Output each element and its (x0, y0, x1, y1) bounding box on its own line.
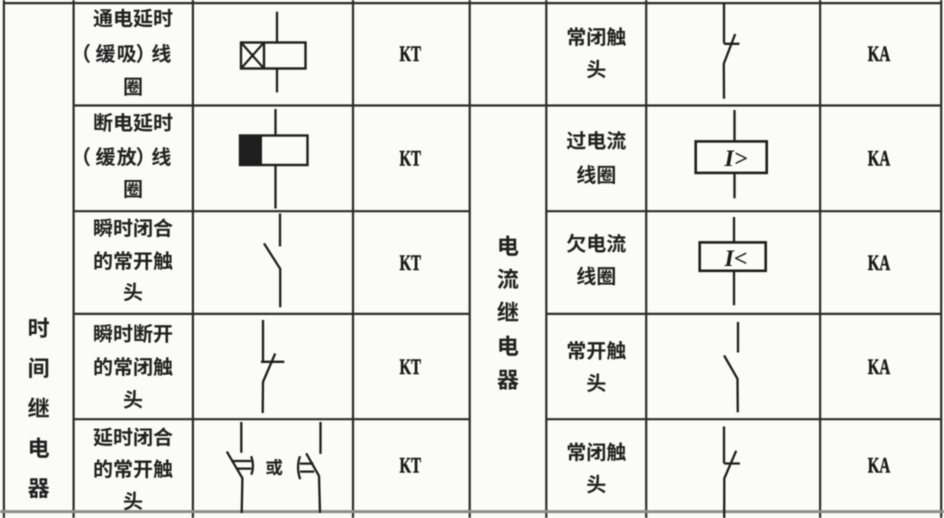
svg-text:I<: I< (723, 246, 747, 272)
svg-text:KT: KT (400, 453, 422, 478)
svg-text:KA: KA (868, 41, 891, 66)
svg-text:I>: I> (723, 146, 747, 172)
svg-text:KT: KT (400, 41, 422, 66)
svg-text:KT: KT (400, 354, 422, 379)
svg-text:KT: KT (400, 250, 422, 275)
svg-text:KA: KA (868, 250, 891, 275)
svg-text:KA: KA (868, 453, 891, 478)
svg-text:KT: KT (400, 146, 422, 171)
svg-text:KA: KA (868, 146, 891, 171)
svg-text:KA: KA (868, 354, 891, 379)
